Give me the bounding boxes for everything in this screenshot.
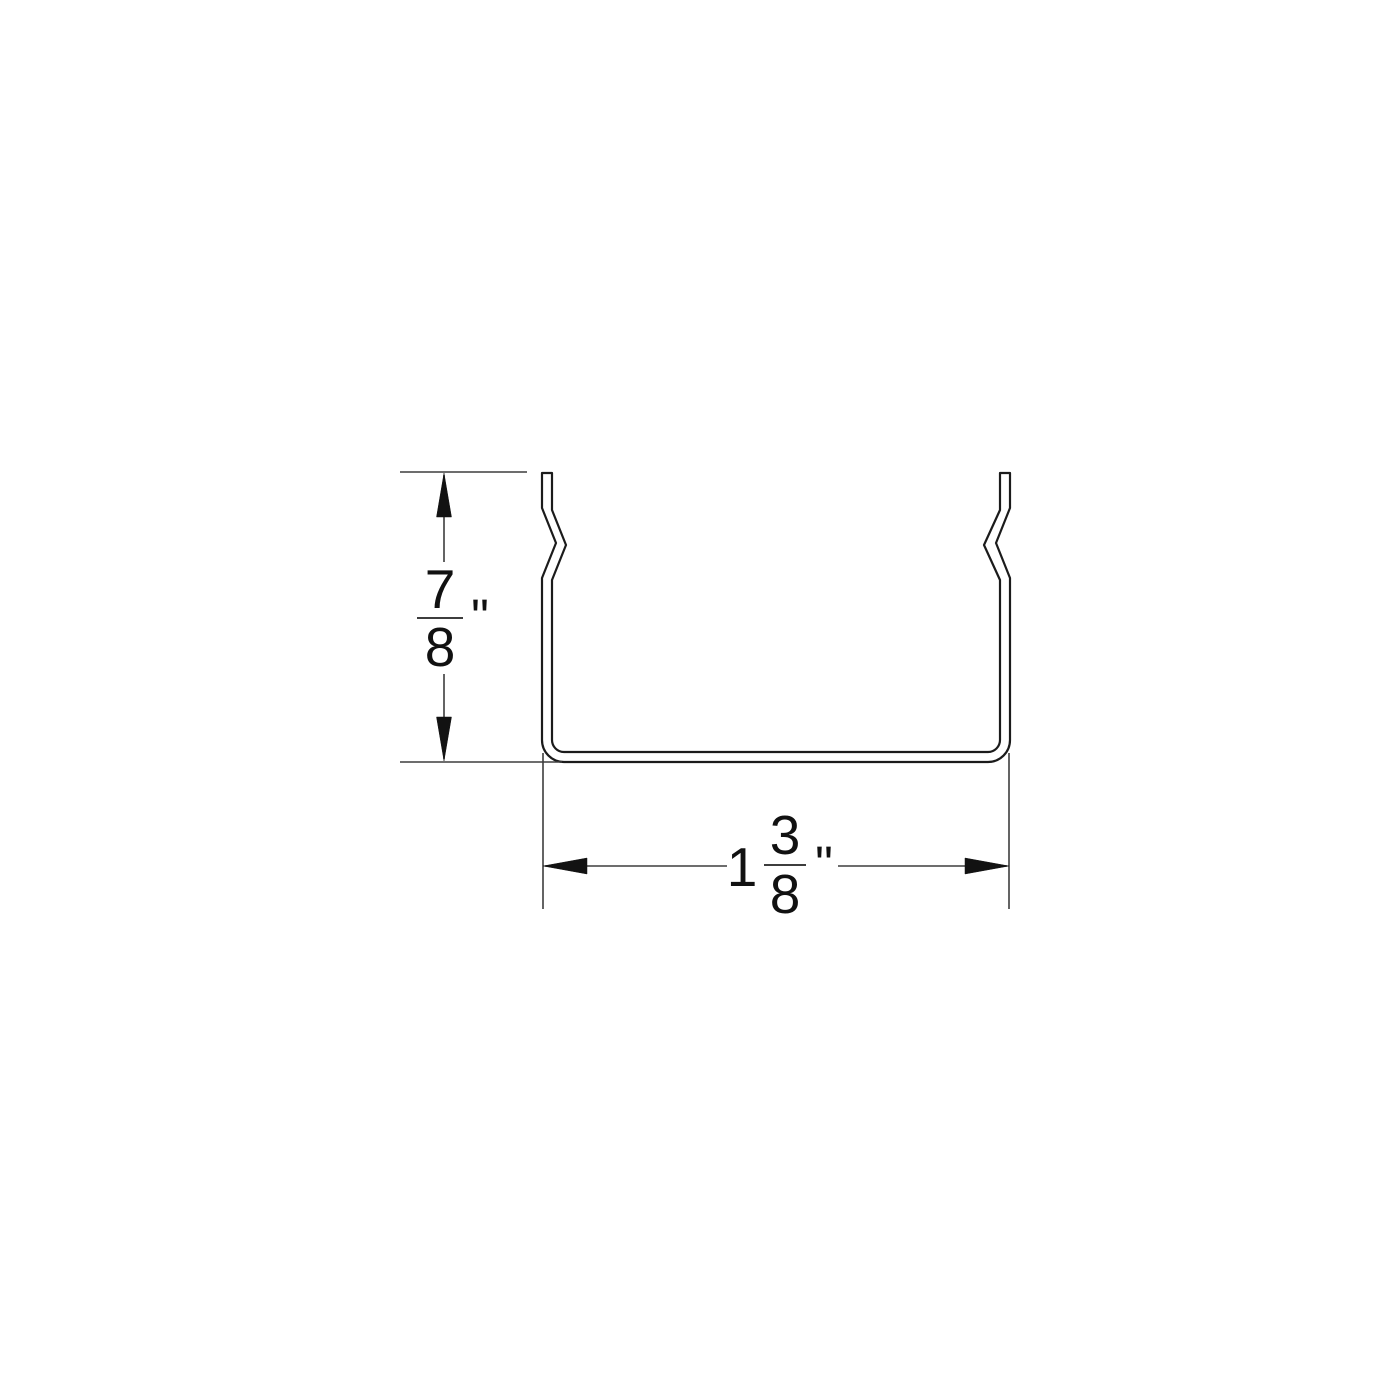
arrowhead-left-icon [543,858,587,874]
width-dimension: 1 3 8 " [543,753,1009,925]
height-dimension: 7 8 " [400,472,562,762]
height-fraction-numerator: 7 [425,558,456,620]
width-fraction-numerator: 3 [770,804,801,866]
width-unit-mark: " [815,836,833,892]
arrowhead-down-icon [437,717,452,761]
width-fraction-denominator: 8 [770,863,801,925]
drawing-sheet: 7 8 " 1 3 8 " [0,0,1400,1400]
technical-drawing: 7 8 " 1 3 8 " [0,0,1400,1400]
arrowhead-up-icon [437,473,452,517]
channel-outline [542,473,1010,762]
width-whole-number: 1 [727,836,758,898]
arrowhead-right-icon [965,858,1009,874]
height-unit-mark: " [471,589,489,645]
channel-profile [542,473,1010,762]
height-fraction-denominator: 8 [425,616,456,678]
